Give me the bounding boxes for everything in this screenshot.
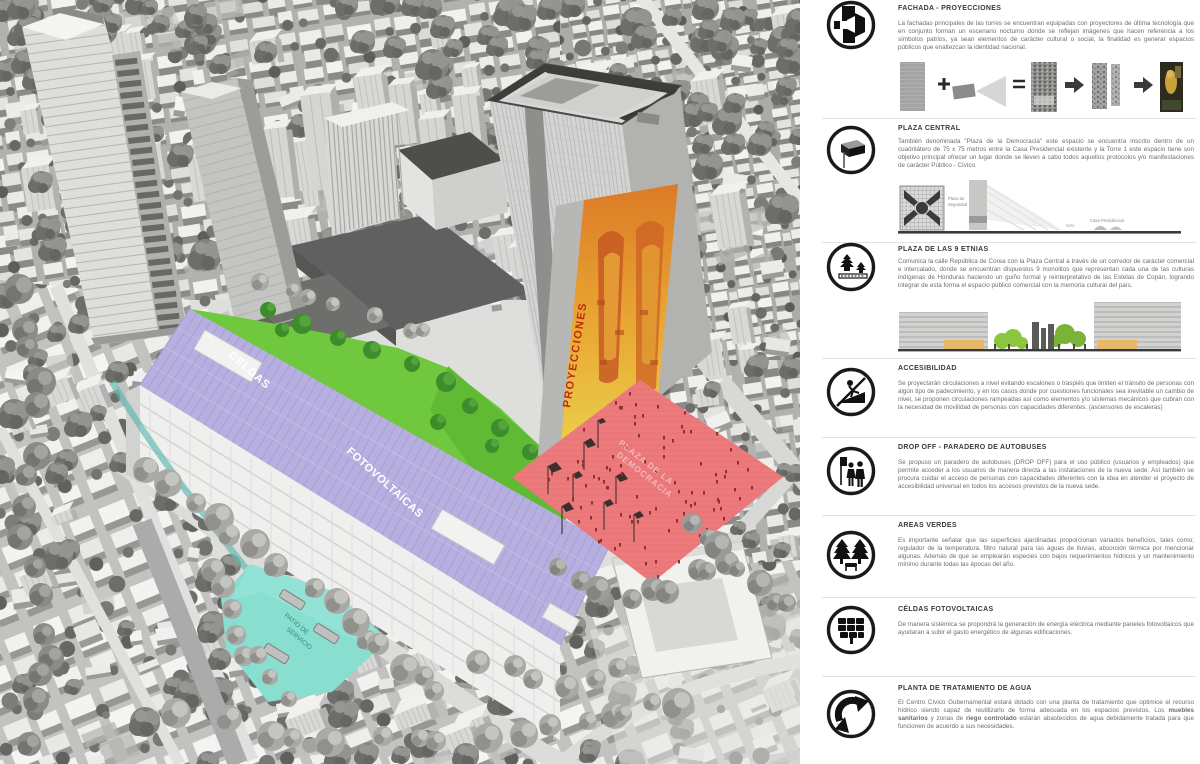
svg-text:Plaza de: Plaza de xyxy=(948,196,965,201)
svg-text:torre: torre xyxy=(1066,223,1075,228)
svg-text:Seguridad: Seguridad xyxy=(948,202,968,207)
svg-text:Casa Presidencial: Casa Presidencial xyxy=(1090,218,1124,223)
